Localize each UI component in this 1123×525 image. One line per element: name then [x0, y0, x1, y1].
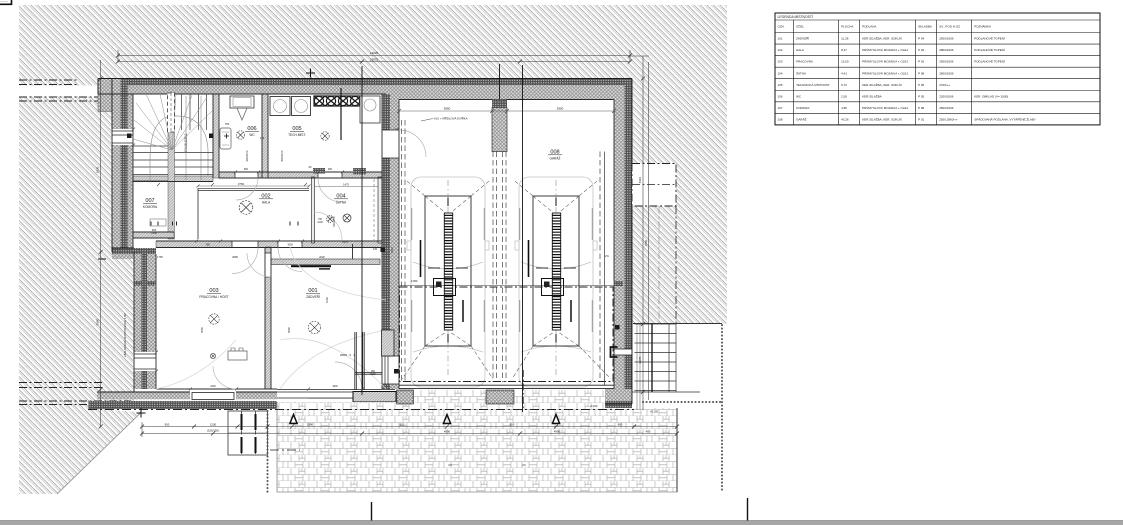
svg-text:P 01: P 01	[918, 118, 924, 122]
svg-text:1200: 1200	[210, 422, 217, 426]
svg-text:KOMORA: KOMORA	[796, 106, 809, 110]
svg-text:4,41: 4,41	[841, 71, 847, 75]
svg-text:WC: WC	[796, 94, 802, 98]
svg-text:2,50: 2,50	[841, 94, 847, 98]
svg-text:3750: 3750	[238, 182, 245, 186]
svg-text:LEGENDA MÍSTNOSTÍ: LEGENDA MÍSTNOSTÍ	[778, 15, 813, 19]
svg-text:KER./DLAŽBA: KER./DLAŽBA	[862, 93, 882, 98]
svg-text:108: 108	[778, 118, 783, 122]
svg-text:ÚČEL: ÚČEL	[796, 24, 804, 29]
svg-text:1000: 1000	[287, 244, 293, 247]
svg-text:800: 800	[510, 422, 515, 426]
svg-text:PLOCHA: PLOCHA	[841, 25, 853, 29]
svg-text:900/1970: 900/1970	[245, 150, 249, 161]
svg-text:HALA: HALA	[262, 201, 271, 205]
svg-text:KER./DLAŽBA, KER. SOKLÍK: KER./DLAŽBA, KER. SOKLÍK	[862, 117, 902, 122]
svg-text:PRACOVNA: PRACOVNA	[796, 60, 813, 64]
svg-text:-0,020: -0,020	[590, 404, 598, 408]
svg-text:1475: 1475	[342, 240, 348, 244]
svg-text:+0,150: +0,150	[650, 410, 659, 414]
svg-text:43,26: 43,26	[841, 118, 849, 122]
svg-text:11,28: 11,28	[841, 37, 849, 41]
svg-text:4990: 4990	[554, 429, 561, 433]
svg-text:2500,2860/++: 2500,2860/++	[939, 118, 958, 122]
svg-text:HALA: HALA	[796, 48, 804, 52]
svg-text:2500/1006: 2500/1006	[939, 71, 954, 75]
svg-text:1000: 1000	[325, 297, 329, 303]
svg-text:3860: 3860	[444, 107, 451, 111]
svg-text:2270: 2270	[638, 356, 642, 363]
svg-text:PRŮMYSLOVÁ MOZAIKA + OLEJ: PRŮMYSLOVÁ MOZAIKA + OLEJ	[862, 59, 908, 64]
svg-text:PODLAHOVÉ TOPENÍ: PODLAHOVÉ TOPENÍ	[974, 36, 1005, 41]
svg-text:3080: 3080	[232, 255, 238, 259]
svg-text:KLV + KŘÍDLOVÁ DVÍŘKA: KLV + KŘÍDLOVÁ DVÍŘKA	[434, 116, 468, 121]
svg-text:TECH.MÍST.: TECH.MÍST.	[288, 133, 306, 137]
svg-text:101: 101	[778, 37, 783, 41]
svg-text:2200/1006: 2200/1006	[939, 94, 954, 98]
svg-text:2500/1006: 2500/1006	[939, 60, 954, 64]
svg-text:102: 102	[778, 48, 783, 52]
svg-text:6,72: 6,72	[841, 83, 847, 87]
svg-text:150: 150	[260, 136, 265, 140]
svg-text:14025: 14025	[370, 51, 379, 55]
svg-text:4750: 4750	[644, 239, 648, 246]
svg-text:POZNÁMKA: POZNÁMKA	[974, 25, 991, 29]
svg-text:PRŮMYSLOVÁ MOZAIKA + OLEJ: PRŮMYSLOVÁ MOZAIKA + OLEJ	[862, 105, 908, 110]
svg-text:5550: 5550	[96, 318, 100, 325]
svg-text:800/1970: 800/1970	[280, 150, 284, 161]
svg-text:8110: 8110	[638, 176, 642, 183]
svg-text:107: 107	[778, 106, 783, 110]
svg-text:2990: 2990	[307, 422, 314, 426]
svg-text:SV., POD.H.OZ: SV., POD.H.OZ	[939, 25, 960, 29]
svg-text:2500/1006: 2500/1006	[939, 37, 954, 41]
svg-text:4990: 4990	[444, 429, 451, 433]
svg-text:2400: 2400	[210, 385, 216, 388]
svg-text:3900: 3900	[557, 107, 564, 111]
svg-text:P 05: P 05	[918, 94, 924, 98]
svg-text:PODLAHOVÉ TOPENÍ: PODLAHOVÉ TOPENÍ	[974, 59, 1005, 64]
svg-text:WC: WC	[249, 133, 255, 137]
svg-text:2100: 2100	[151, 231, 157, 235]
svg-text:5050: 5050	[200, 327, 204, 333]
svg-text:-0,050: -0,050	[410, 279, 418, 283]
svg-text:ZÁDVEŘÍ: ZÁDVEŘÍ	[796, 36, 809, 41]
svg-text:2700/++: 2700/++	[939, 83, 950, 87]
svg-text:SKLADBA: SKLADBA	[918, 25, 932, 29]
svg-text:750: 750	[225, 122, 230, 126]
svg-text:2500/1006: 2500/1006	[939, 106, 954, 110]
svg-text:800: 800	[400, 422, 405, 426]
svg-text:P 02: P 02	[918, 60, 924, 64]
svg-text:900: 900	[206, 244, 211, 247]
svg-text:GARÁŽ: GARÁŽ	[796, 117, 807, 122]
svg-text:P 02: P 02	[918, 48, 924, 52]
svg-text:103: 103	[778, 60, 783, 64]
svg-text:PRŮMYSLOVÁ MOZAIKA + OLEJ: PRŮMYSLOVÁ MOZAIKA + OLEJ	[862, 47, 908, 52]
svg-text:2100: 2100	[370, 373, 376, 376]
svg-text:1750: 1750	[157, 255, 163, 259]
svg-text:PRŮMYSLOVÁ MOZAIKA + OLEJ: PRŮMYSLOVÁ MOZAIKA + OLEJ	[862, 70, 908, 75]
svg-text:TECHNICKÁ MÍSTNOST: TECHNICKÁ MÍSTNOST	[796, 83, 830, 87]
svg-text:KER. OBKLAD (V= 2000): KER. OBKLAD (V= 2000)	[974, 94, 1008, 98]
svg-text:3830: 3830	[96, 166, 100, 173]
svg-text:GARÁŽ: GARÁŽ	[550, 156, 561, 161]
svg-text:P 05: P 05	[918, 83, 924, 87]
svg-text:106: 106	[778, 94, 783, 98]
svg-text:4,86: 4,86	[841, 106, 847, 110]
svg-text:700/1970: 700/1970	[332, 216, 336, 227]
svg-text:900: 900	[328, 168, 333, 171]
svg-text:105: 105	[778, 83, 783, 87]
svg-text:13675: 13675	[370, 58, 379, 62]
svg-text:PODLAHA: PODLAHA	[862, 25, 876, 29]
svg-text:P 04: P 04	[918, 37, 924, 41]
svg-text:1475: 1475	[343, 183, 349, 187]
svg-text:8110: 8110	[390, 247, 394, 253]
svg-text:P 08: P 08	[918, 71, 924, 75]
svg-text:ŠATNA: ŠATNA	[796, 70, 806, 75]
svg-text:PODLAHOVÉ TOPENÍ: PODLAHOVÉ TOPENÍ	[974, 47, 1005, 52]
svg-text:800: 800	[244, 168, 249, 171]
svg-text:960: 960	[618, 422, 623, 426]
svg-text:12,00: 12,00	[841, 60, 849, 64]
svg-text:ZÁKLADOVÁ KONSTRUKCE 1.NP: ZÁKLADOVÁ KONSTRUKCE 1.NP	[123, 313, 127, 357]
svg-text:KER./DLAŽBA, KER. SOKLÍK: KER./DLAŽBA, KER. SOKLÍK	[862, 82, 902, 87]
svg-text:ZÁDVEŘÍ: ZÁDVEŘÍ	[306, 294, 320, 299]
svg-text:KOMORA: KOMORA	[143, 205, 158, 209]
svg-text:P 08: P 08	[918, 106, 924, 110]
svg-text:125: 125	[373, 248, 378, 251]
svg-text:2100: 2100	[317, 221, 323, 224]
svg-text:2020: 2020	[319, 255, 325, 259]
svg-text:104: 104	[778, 71, 783, 75]
svg-text:5050: 5050	[287, 327, 291, 333]
svg-text:SPÁDOVANÁ PODLAHA, VYTÁPĚNÉ ŽL: SPÁDOVANÁ PODLAHA, VYTÁPĚNÉ ŽLABY	[974, 117, 1036, 122]
svg-text:PRACOVNA / HOST: PRACOVNA / HOST	[199, 295, 228, 299]
svg-text:950: 950	[165, 422, 170, 426]
svg-text:OZN.: OZN.	[778, 25, 785, 29]
svg-text:2800/1006: 2800/1006	[939, 48, 954, 52]
svg-text:1800: 1800	[332, 385, 338, 388]
svg-text:KER./DLAŽBA, KER. SOKLÍK: KER./DLAŽBA, KER. SOKLÍK	[862, 36, 902, 41]
svg-text:(100/150): (100/150)	[207, 428, 219, 432]
svg-text:485: 485	[646, 429, 651, 433]
svg-text:8,47: 8,47	[841, 48, 847, 52]
